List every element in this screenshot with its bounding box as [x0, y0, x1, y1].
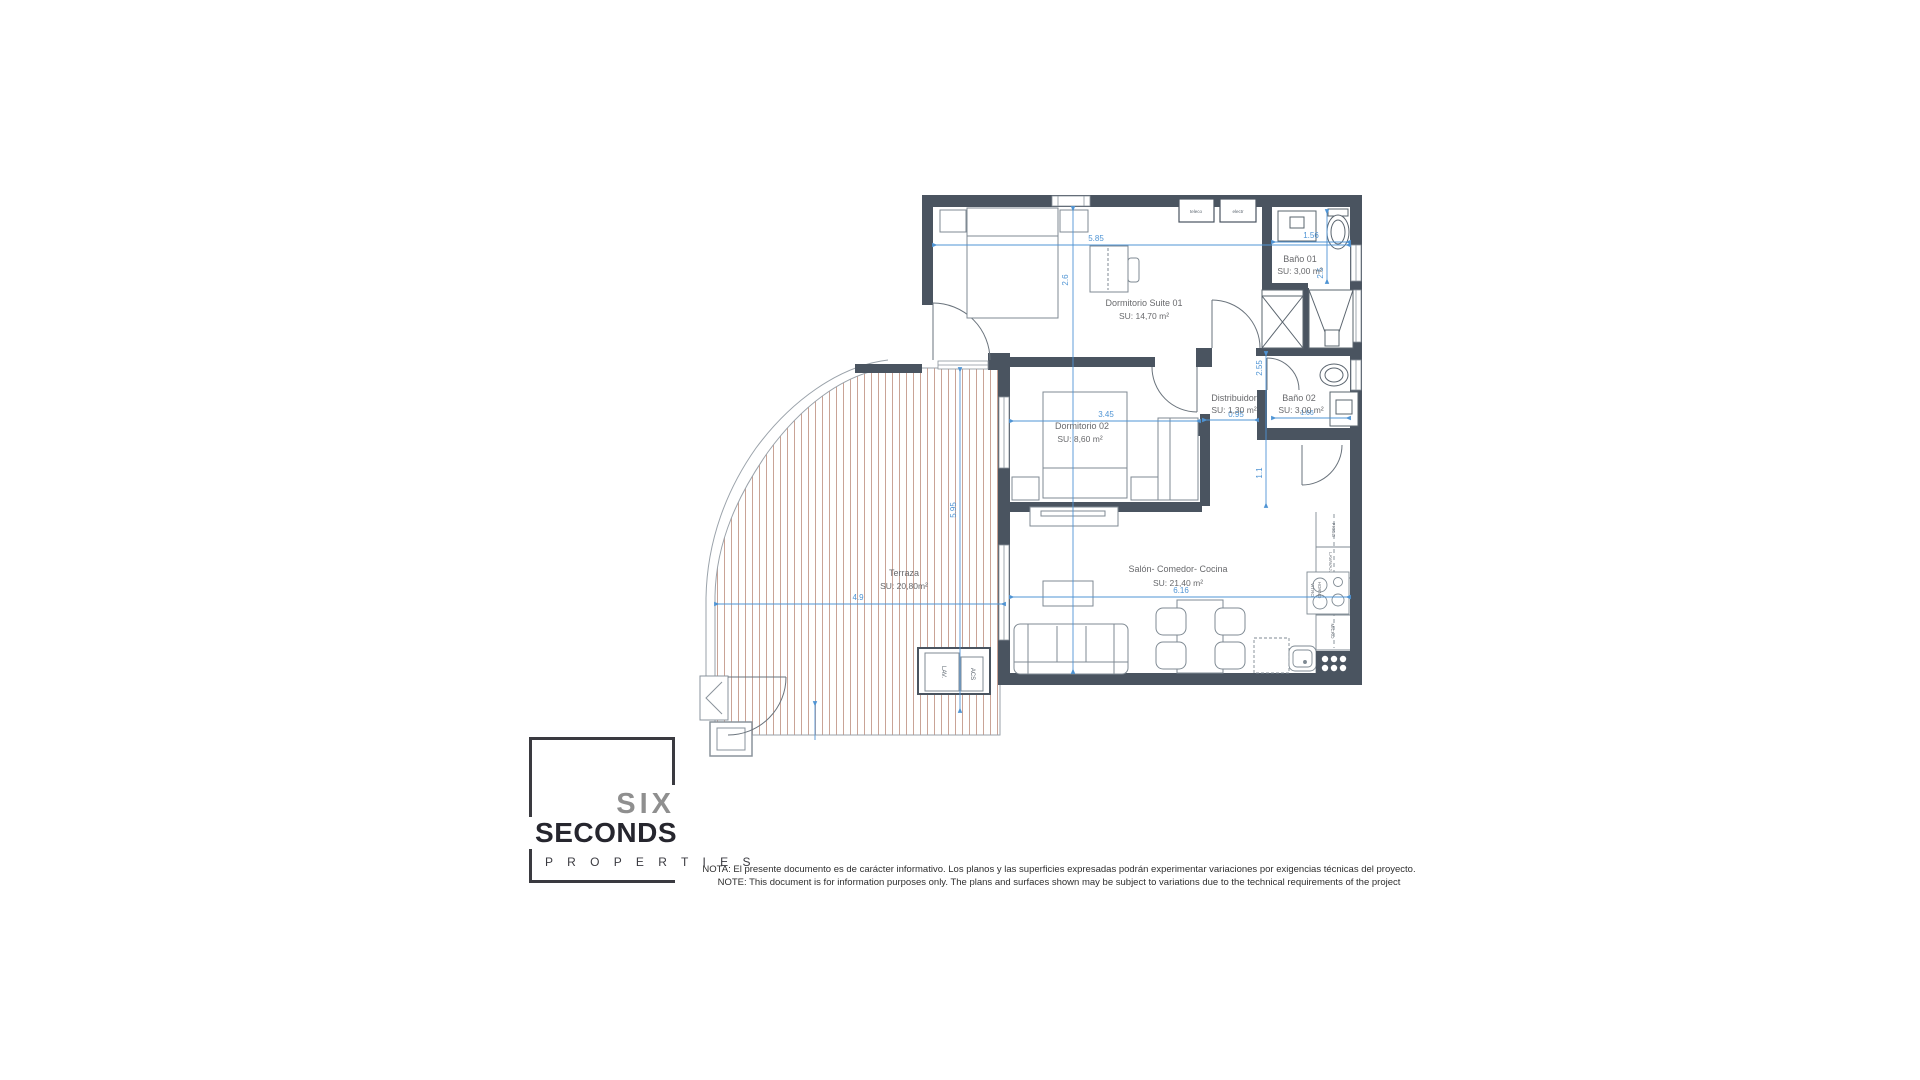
dim-hall-upper: 2.55: [1255, 360, 1264, 376]
shower-drain: [1325, 330, 1339, 346]
note-line-english: NOTE: This document is for information p…: [659, 876, 1459, 889]
dorm2-furniture: [1012, 392, 1198, 500]
floor-plan: teleco electr: [690, 150, 1410, 800]
window-terraza-1: [999, 397, 1009, 468]
page: teleco electr: [0, 0, 1920, 1080]
acs-label: ACS: [969, 668, 975, 680]
dishwasher-label: LAVAVAJ.: [1328, 552, 1333, 572]
distribuidor-area: SU: 1,30 m²: [1211, 405, 1257, 415]
suite-bed: [967, 208, 1058, 318]
kitchen-island-hidden: [1254, 638, 1289, 673]
dim-suite-width: 5.85: [1088, 234, 1104, 243]
bano1-area: SU: 3,00 m²: [1277, 266, 1323, 276]
dorm2-bed: [1043, 392, 1127, 498]
bano1-name: Baño 01: [1283, 254, 1317, 264]
dorm2-nightstand-left: [1012, 477, 1039, 500]
dim-terraza-depth: 5.95: [949, 502, 958, 518]
hall-wardrobe: [1262, 290, 1303, 348]
logo: SIX SECONDS P R O P E R T I E S: [529, 737, 675, 883]
planter-inner: [717, 728, 745, 750]
kitchen: FRIGO LAVAVAJ. VITRO HORNO MICRO: [1254, 512, 1350, 678]
dim-dorm2-width: 3.45: [1098, 410, 1114, 419]
fridge-label: FRIGO: [1331, 523, 1336, 538]
bano2-name: Baño 02: [1282, 393, 1316, 403]
suite-nightstand-right: [1060, 210, 1088, 232]
suite-name: Dormitorio Suite 01: [1105, 298, 1182, 308]
dim-suite-depth: 2.6: [1061, 274, 1070, 286]
window-terraza-2: [999, 545, 1009, 640]
dorm2-nightstand-right: [1131, 477, 1158, 500]
window-right-3: [1351, 360, 1361, 390]
coffee-table: [1043, 581, 1093, 606]
electr-label: electr: [1232, 209, 1244, 214]
dorm2-area: SU: 8,60 m²: [1057, 434, 1103, 444]
oven-label: HORNO: [1317, 582, 1322, 599]
utility-closet: LAV. ACS: [918, 648, 990, 694]
salon-name: Salón- Comedor- Cocina: [1128, 564, 1227, 574]
terraza-area: SU: 20,80m²: [880, 581, 928, 591]
dim-hall-lower: 1.1: [1255, 467, 1264, 479]
entry-stairs: [700, 676, 728, 720]
logo-border-stub: [672, 740, 675, 785]
suite-nightstand-left: [940, 210, 966, 232]
dim-terraza-width: 4.9: [852, 593, 864, 602]
window-suite-terrace: [938, 361, 988, 369]
dining-chair: [1215, 608, 1245, 635]
door-dorm2: [1152, 367, 1197, 412]
washer-label: LAV.: [940, 666, 946, 678]
logo-seconds: SECONDS: [529, 817, 679, 849]
dorm2-wardrobe: [1158, 418, 1198, 500]
disclaimer-note: NOTA: El presente documento es de caráct…: [659, 863, 1459, 889]
micro-label: MICRO: [1330, 624, 1335, 639]
window-right-1: [1351, 245, 1361, 281]
suite-desk-chair: [1128, 258, 1139, 282]
dining-chair: [1215, 642, 1245, 669]
sofa: [1014, 624, 1128, 674]
dorm2-name: Dormitorio 02: [1055, 421, 1109, 431]
suite-desk: [1090, 246, 1128, 292]
dim-bano1-width: 1.56: [1303, 231, 1319, 240]
window-top-wall: [1052, 196, 1090, 206]
dining-chair: [1156, 608, 1186, 635]
salon-furniture: [1014, 507, 1245, 674]
note-line-spanish: NOTA: El presente documento es de caráct…: [659, 863, 1459, 876]
terraza-name: Terraza: [889, 568, 919, 578]
bano1-fixtures: [1278, 209, 1349, 249]
distribuidor-name: Distribuidor: [1211, 393, 1257, 403]
vitro-label: VITRO: [1310, 583, 1315, 597]
kitchen-corner-unit: [1316, 651, 1350, 678]
bano2-area: SU: 3,00 m²: [1278, 405, 1324, 415]
dining-chair: [1156, 642, 1186, 669]
door-bano2: [1267, 358, 1299, 390]
suite-area: SU: 14,70 m²: [1119, 311, 1169, 321]
door-salon-hall: [1302, 445, 1342, 485]
door-suite-hall: [1212, 300, 1260, 348]
salon-area: SU: 21,40 m²: [1153, 578, 1203, 588]
teleco-label: teleco: [1190, 209, 1203, 214]
